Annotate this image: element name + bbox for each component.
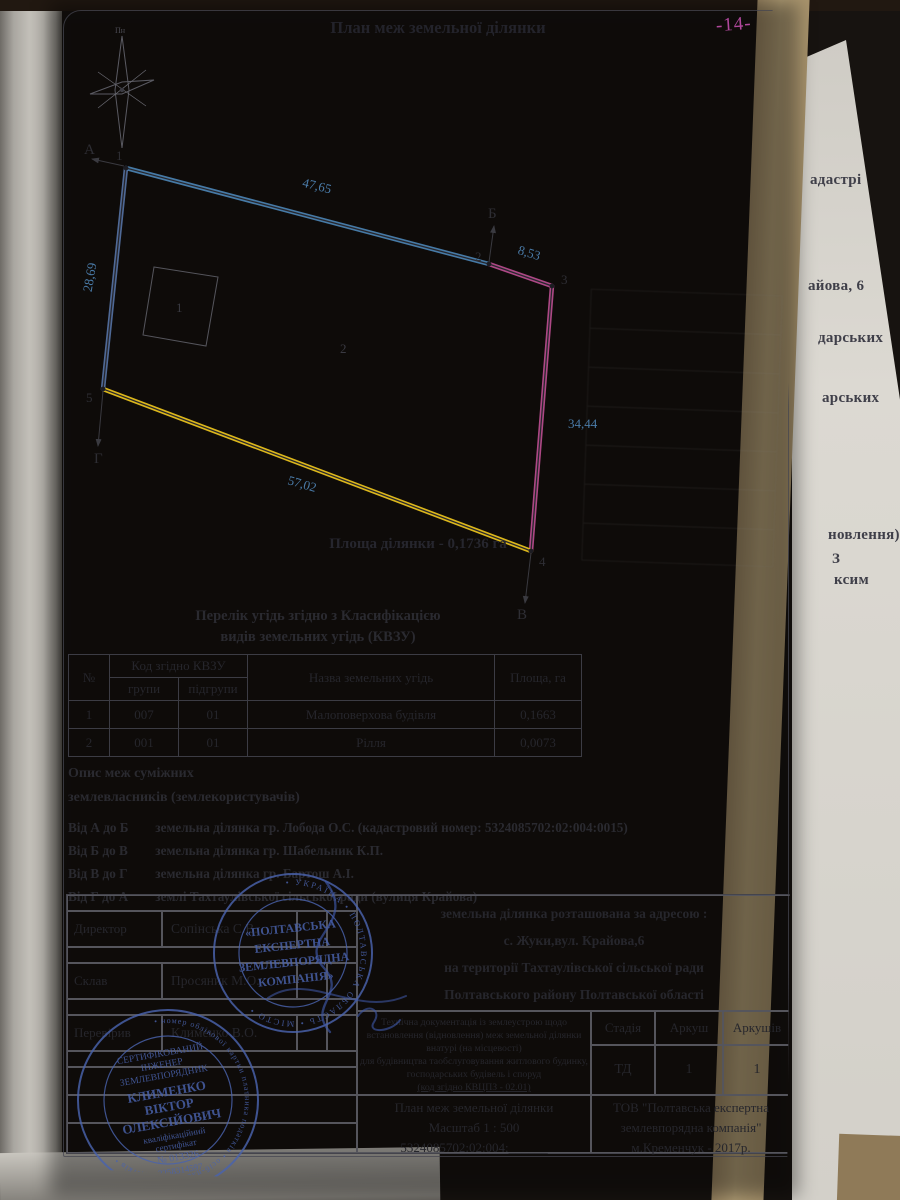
arrow-to-B (489, 226, 494, 262)
boundary-range: Від А до Б (68, 820, 152, 836)
address-line: на території Тахтаулівської сільської ра… (358, 954, 790, 981)
sheet-value: 1 (655, 1045, 723, 1095)
landuse-title-line1: Перелік угідь згідно з Класифікацією (128, 606, 508, 627)
show-through-artifact (581, 289, 782, 568)
direction-label-A: А (84, 142, 95, 158)
company-cell: ТОВ "Полтавська експертна землевпорядна … (591, 1095, 791, 1153)
cell-group: 007 (110, 701, 179, 729)
edge-text-fragment: дарських (818, 330, 883, 347)
doc-line: Технічна документація із землеустрою щод… (358, 1016, 590, 1029)
col-header-area: Площа, га (495, 655, 582, 701)
table-row: 1 007 01 Малоповерхова будівля 0,1663 (69, 701, 582, 729)
cell-area: 0,1663 (495, 701, 582, 729)
cell-num: 2 (69, 729, 110, 757)
role-name: Клименко В.О. (162, 1015, 297, 1051)
vertex-label-2: 2 (475, 249, 482, 264)
col-header-code: Код згідно КВЗУ (110, 655, 248, 678)
arrow-to-G (98, 391, 103, 446)
plan-sheet: План меж земельної ділянки -14- Пн (58, 6, 796, 1191)
direction-label-G: Г (94, 451, 103, 467)
building-label: 1 (176, 300, 183, 315)
boundary-range: Від Б до В (68, 843, 152, 859)
edge-text-fragment: адастрі (810, 172, 861, 189)
vertex-label-1: 1 (116, 148, 123, 163)
col-header-name: Назва земельних угідь (248, 655, 495, 701)
doc-line: (код згідно КВЦПЗ - 02.01) (358, 1081, 590, 1094)
cell-subgroup: 01 (179, 701, 248, 729)
doc-line: встановлення (відновлення) меж земельної… (358, 1029, 590, 1042)
landuse-title-line2: видів земельних угідь (КВЗУ) (128, 627, 508, 648)
parcel-area-label: Площа ділянки - 0,1736 га (248, 536, 588, 553)
sheets-value: 1 (723, 1045, 791, 1095)
doc-line: господарських будівель і споруд (358, 1068, 590, 1081)
col-header-group: групи (110, 678, 179, 701)
cell-name: Малоповерхова будівля (248, 701, 495, 729)
company-line: ТОВ "Полтавська експертна (592, 1098, 790, 1118)
stage-value: ТД (591, 1045, 655, 1095)
sheet-header: Аркуш (655, 1011, 723, 1045)
cell-subgroup: 01 (179, 729, 248, 757)
cell-num: 1 (69, 701, 110, 729)
address-cell: земельна ділянка розташована за адресою … (357, 895, 791, 1011)
edge-text-fragment: З (832, 551, 840, 568)
vertex-label-5: 5 (86, 390, 93, 405)
doc-line: внатурі (на місцевості) (358, 1042, 590, 1055)
length-4-5: 57,02 (286, 472, 318, 494)
cell-name: Рілля (248, 729, 495, 757)
address-line: земельна ділянка розташована за адресою … (358, 900, 790, 927)
company-line: землевпорядна компанія" (592, 1118, 790, 1138)
length-5-1: 28,69 (80, 262, 100, 293)
boundary-desc: земельна ділянка гр. Шабельник К.П. (155, 843, 383, 858)
col-header-subgroup: підгрупи (179, 678, 248, 701)
role-name: Просяник М.О. (162, 963, 297, 999)
parcel-label: 2 (340, 341, 347, 356)
plan-title-line: План меж земельної ділянки (358, 1098, 590, 1118)
boundary-range: Від В до Г (68, 866, 152, 882)
cell-area: 0,0073 (495, 729, 582, 757)
cardboard-corner (837, 1134, 900, 1200)
role-label: Директор (67, 911, 162, 947)
sheets-header: Аркушів (723, 1011, 791, 1045)
adjacent-item: Від Б до В земельна ділянка гр. Шабельни… (68, 843, 383, 859)
photo-of-document: адастрі айова, 6 дарських арських новлен… (0, 0, 900, 1200)
edge-text-fragment: ксим (834, 572, 869, 589)
plan-scale-cell: План меж земельної ділянки Масштаб 1 : 5… (357, 1095, 591, 1153)
underlying-paper (792, 40, 900, 1200)
landuse-table: № Код згідно КВЗУ Назва земельних угідь … (68, 654, 582, 757)
adjacent-item: Від А до Б земельна ділянка гр. Лобода О… (68, 820, 628, 836)
company-line: м.Кременчук - 2017р. (592, 1138, 790, 1158)
length-1-2: 47,65 (301, 175, 333, 197)
address-line: Полтавського району Полтавської області (358, 981, 790, 1008)
edge-text-fragment: новлення) (828, 527, 900, 544)
address-line: с. Жуки,вул. Крайова,6 (358, 927, 790, 954)
role-name: Сопінська С.В. (162, 911, 297, 947)
edge-text-fragment: айова, 6 (808, 278, 864, 295)
doc-description-cell: Технічна документація із землеустрою щод… (357, 1011, 591, 1095)
adjacent-heading-line2: землевласників (землекористувачів) (68, 790, 300, 806)
role-label: Склав (67, 963, 162, 999)
table-row: 2 001 01 Рілля 0,0073 (69, 729, 582, 757)
landuse-table-title: Перелік угідь згідно з Класифікацією вид… (128, 606, 508, 648)
vertex-label-3: 3 (561, 272, 568, 287)
arrow-to-V (525, 553, 531, 603)
boundary-outline (103, 168, 552, 551)
boundary-desc: земельна ділянка гр. Лобода О.С. (кадаст… (155, 820, 627, 835)
adjacent-heading-line1: Опис меж суміжних (68, 766, 194, 782)
direction-label-V: В (517, 607, 527, 623)
stage-header: Стадія (591, 1011, 655, 1045)
document-title: План меж земельної ділянки (228, 18, 648, 38)
col-header-num: № (69, 655, 110, 701)
direction-label-B: Б (488, 206, 497, 222)
adjacent-item: Від В до Г земельна ділянка гр. Бартош А… (68, 866, 354, 882)
handwritten-page-number: -14- (715, 13, 752, 37)
boundary-desc: земельна ділянка гр. Бартош А.І. (155, 866, 354, 881)
cell-group: 001 (110, 729, 179, 757)
edge-text-fragment: арських (822, 390, 879, 407)
length-2-3: 8,53 (516, 242, 542, 263)
cadastral-number-line: 5324085702:02:004:______ (358, 1138, 590, 1158)
vertex-label-4: 4 (539, 554, 546, 569)
role-label: Перевірив (67, 1015, 162, 1051)
compass-north-label: Пн (115, 26, 126, 35)
title-block: Директор Сопінська С.В. Склав Просяник М… (66, 894, 792, 1154)
scale-line: Масштаб 1 : 500 (358, 1118, 590, 1138)
doc-line: для будівництва таобслуговування житлово… (358, 1055, 590, 1068)
